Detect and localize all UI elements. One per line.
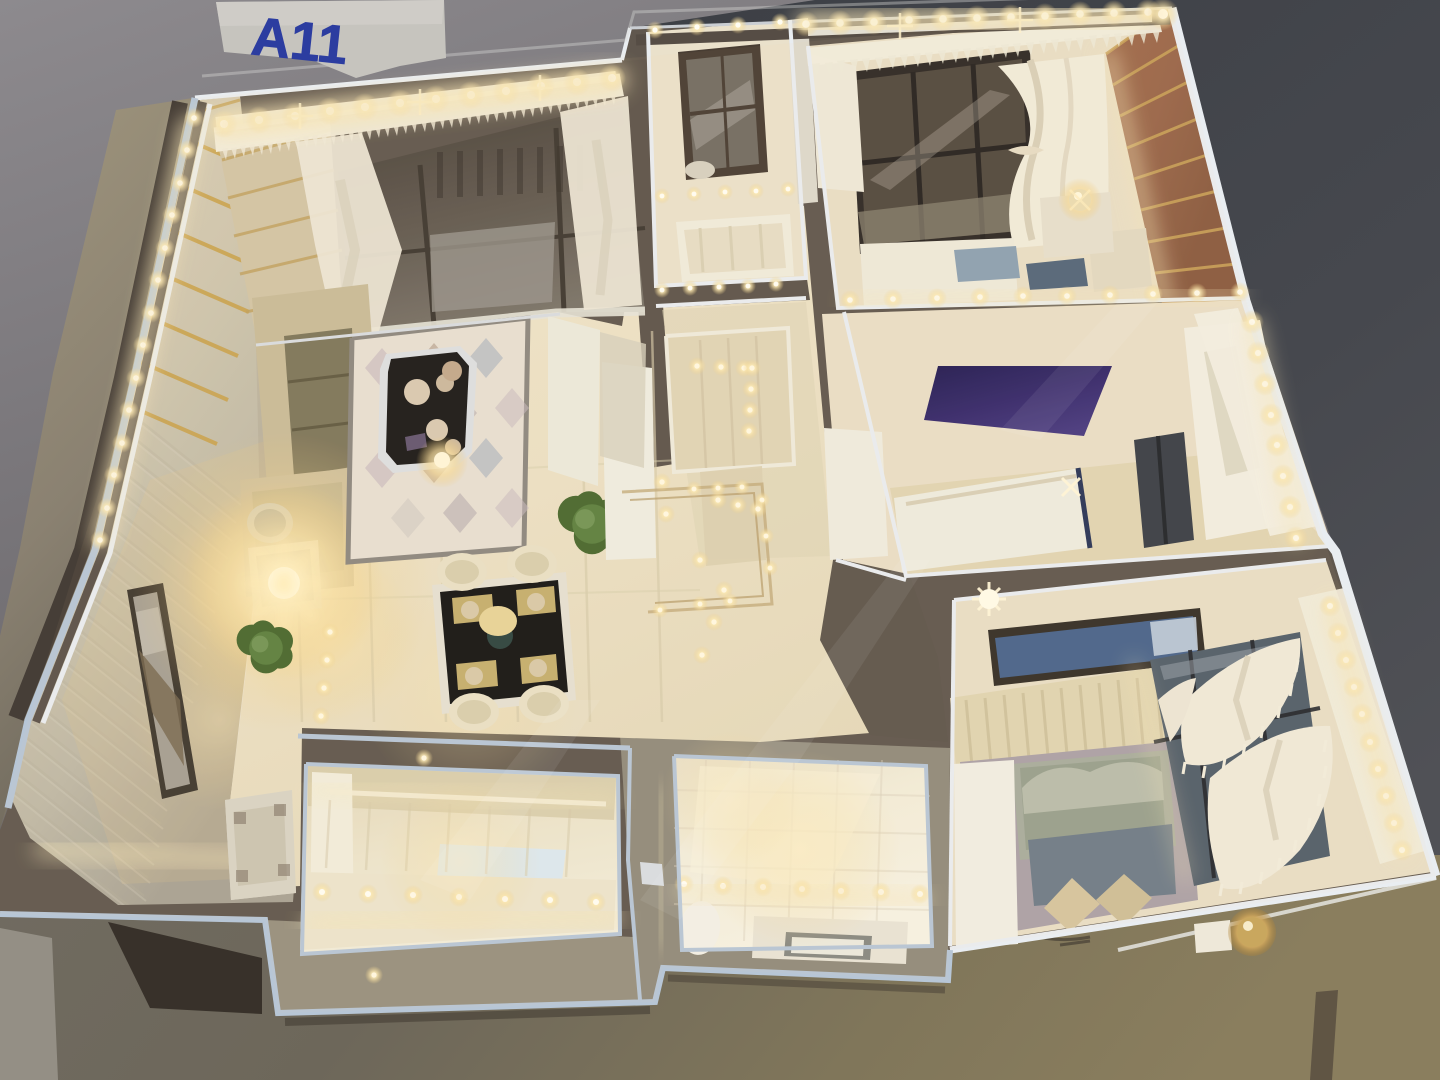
svg-text:A11: A11 bbox=[249, 6, 351, 76]
